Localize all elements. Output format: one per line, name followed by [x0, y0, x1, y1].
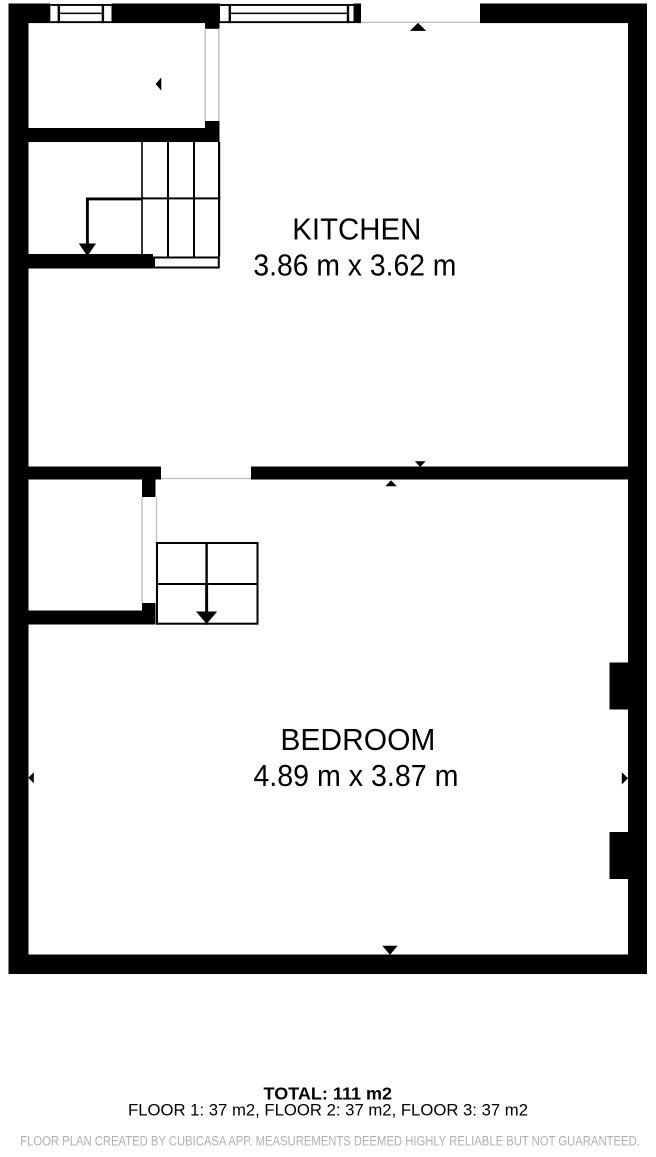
svg-text:FLOOR PLAN CREATED BY CUBICASA: FLOOR PLAN CREATED BY CUBICASA APP. MEAS… — [20, 1134, 640, 1150]
svg-text:4.89 m x 3.87 m: 4.89 m x 3.87 m — [253, 759, 458, 793]
svg-text:BEDROOM: BEDROOM — [280, 723, 435, 757]
svg-text:KITCHEN: KITCHEN — [292, 213, 421, 247]
svg-text:3.86 m x 3.62 m: 3.86 m x 3.62 m — [253, 249, 456, 283]
svg-text:FLOOR 1: 37 m2, FLOOR 2: 37 m2: FLOOR 1: 37 m2, FLOOR 2: 37 m2, FLOOR 3:… — [128, 1101, 528, 1120]
